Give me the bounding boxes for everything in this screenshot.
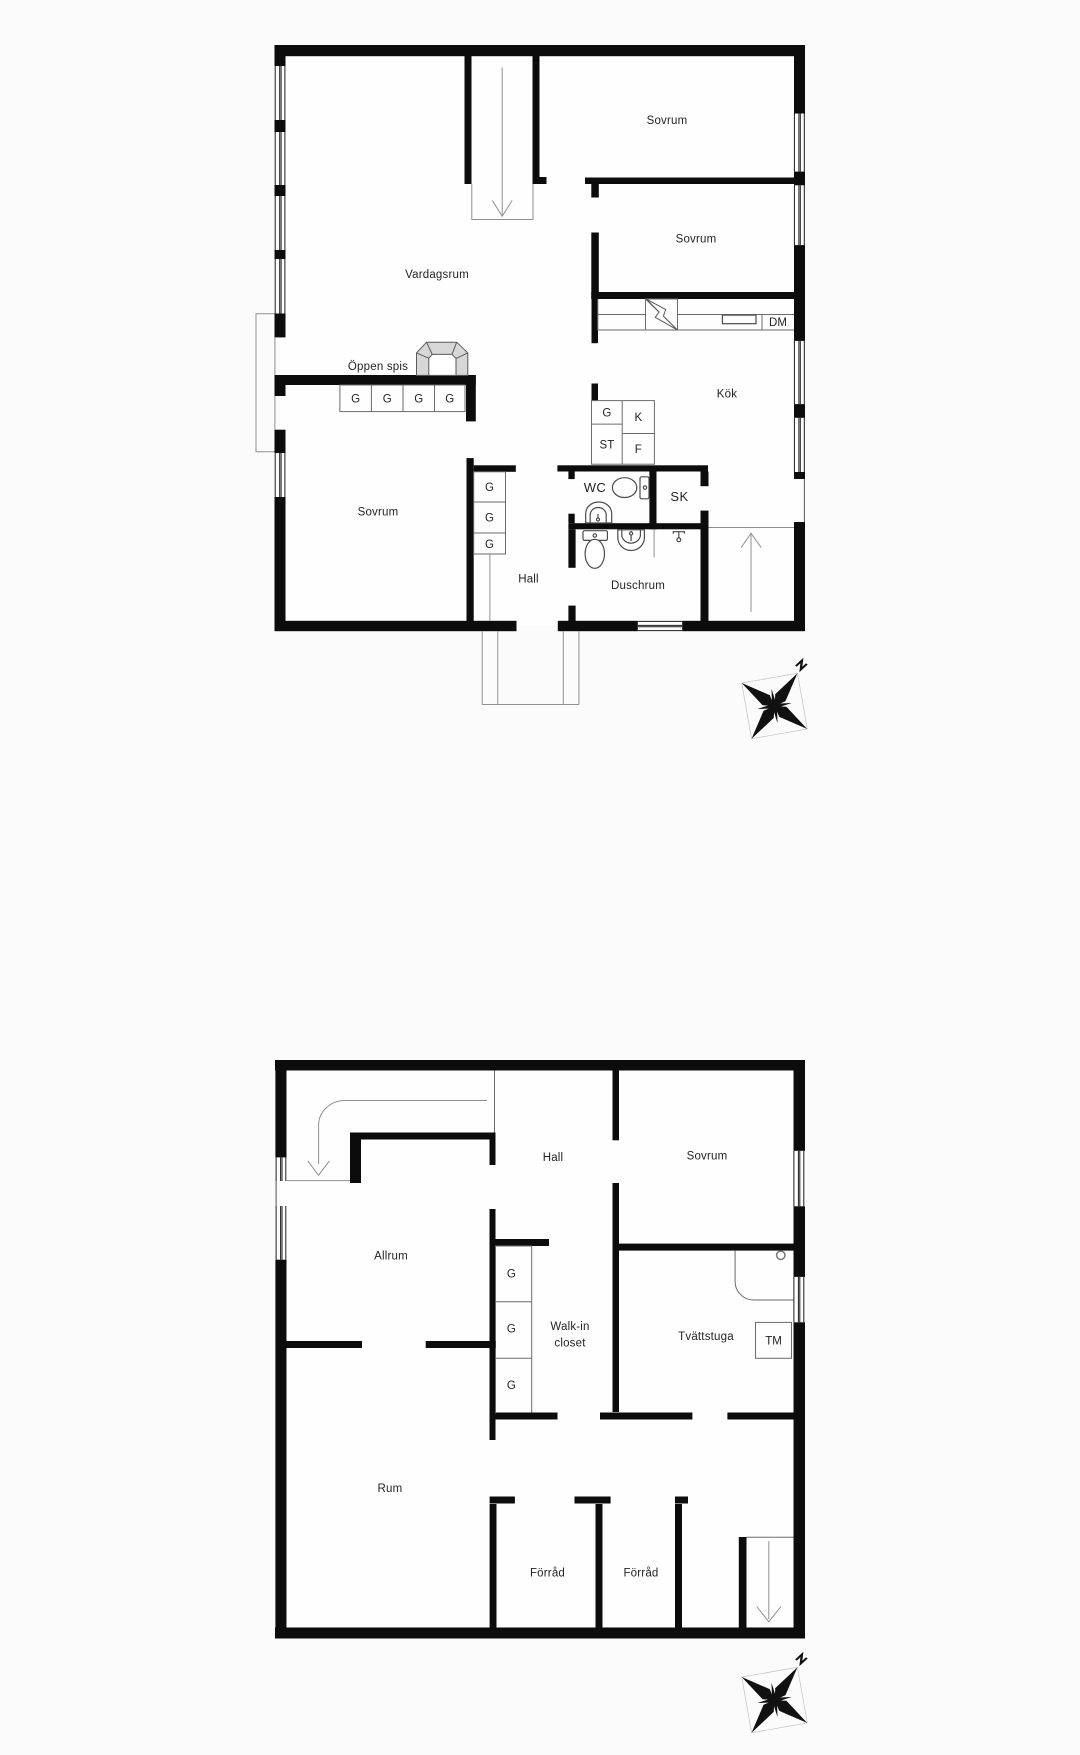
svg-text:G: G — [507, 1324, 516, 1336]
svg-text:G: G — [383, 394, 392, 406]
svg-text:Walk-in: Walk-in — [550, 1321, 589, 1333]
svg-text:Tvättstuga: Tvättstuga — [678, 1331, 734, 1343]
svg-text:G: G — [351, 394, 360, 406]
svg-text:Kök: Kök — [717, 389, 737, 401]
svg-text:G: G — [485, 482, 494, 494]
svg-text:SK: SK — [670, 489, 688, 504]
svg-text:ST: ST — [600, 440, 615, 452]
svg-text:K: K — [634, 412, 642, 424]
svg-text:Duschrum: Duschrum — [611, 580, 665, 592]
svg-text:F: F — [635, 444, 642, 456]
svg-text:Hall: Hall — [543, 1152, 564, 1164]
svg-text:G: G — [445, 394, 454, 406]
svg-text:DM: DM — [769, 317, 787, 329]
svg-text:Förråd: Förråd — [530, 1568, 565, 1580]
svg-text:WC: WC — [584, 480, 606, 495]
svg-text:Sovrum: Sovrum — [676, 234, 717, 246]
svg-text:Öppen spis: Öppen spis — [348, 361, 408, 373]
svg-text:Förråd: Förråd — [623, 1568, 658, 1580]
svg-text:Sovrum: Sovrum — [647, 115, 688, 127]
svg-text:G: G — [507, 1269, 516, 1281]
svg-text:TM: TM — [765, 1336, 782, 1348]
svg-text:G: G — [485, 513, 494, 525]
svg-text:G: G — [507, 1380, 516, 1392]
svg-text:Allrum: Allrum — [374, 1250, 408, 1262]
svg-text:Vardagsrum: Vardagsrum — [405, 269, 469, 281]
svg-text:G: G — [485, 539, 494, 551]
svg-text:G: G — [602, 408, 611, 420]
svg-text:Rum: Rum — [378, 1483, 403, 1495]
svg-text:closet: closet — [554, 1338, 586, 1350]
svg-text:G: G — [414, 394, 423, 406]
svg-text:Hall: Hall — [518, 574, 539, 586]
svg-text:Sovrum: Sovrum — [687, 1151, 728, 1163]
svg-text:Sovrum: Sovrum — [358, 507, 399, 519]
